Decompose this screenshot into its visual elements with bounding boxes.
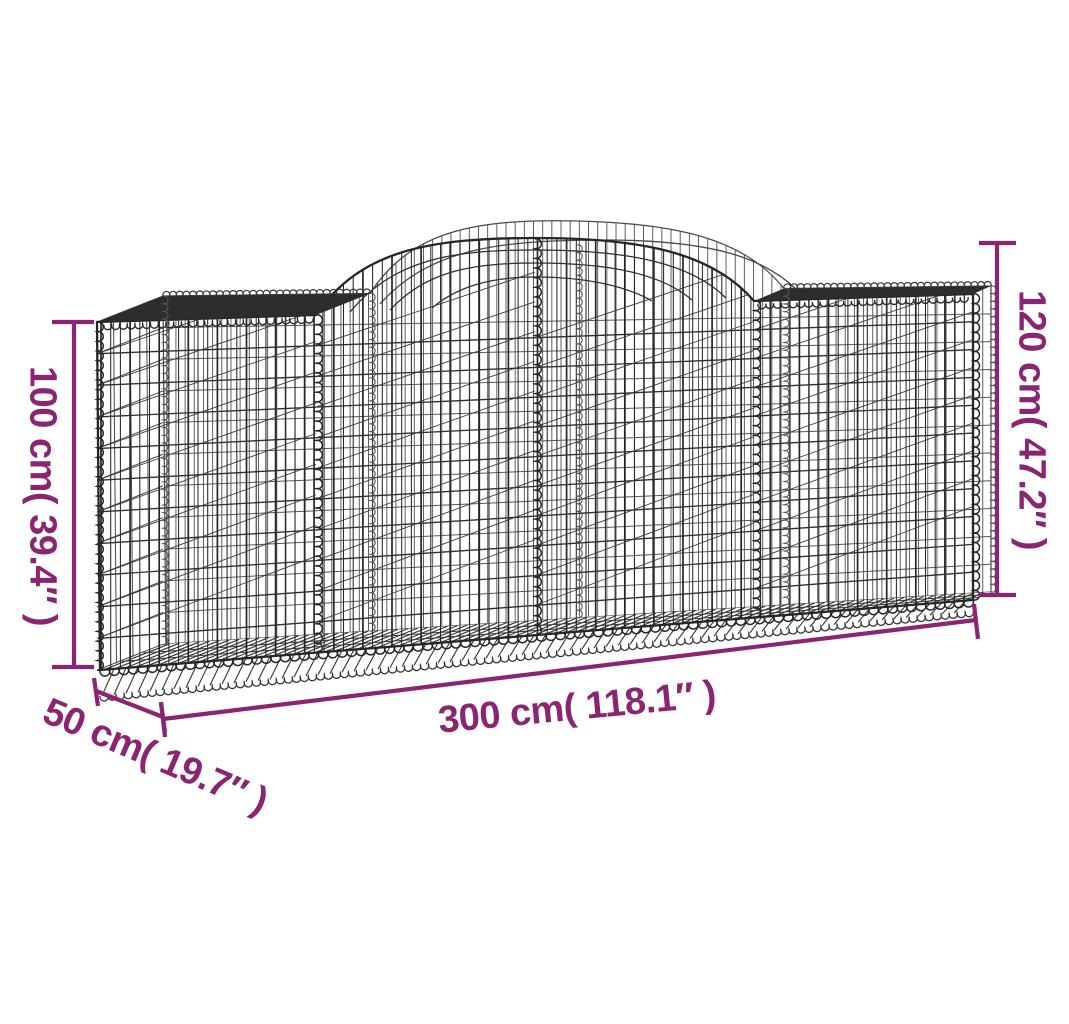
gabion-basket-illustration [0, 0, 1069, 1024]
dimension-label-height-left: 100 cm( 39.4″ ) [21, 366, 64, 626]
product-dimension-image: 100 cm( 39.4″ ) 120 cm( 47.2″ ) 300 cm( … [0, 0, 1069, 1024]
dimension-label-height-right: 120 cm( 47.2″ ) [1010, 290, 1053, 550]
